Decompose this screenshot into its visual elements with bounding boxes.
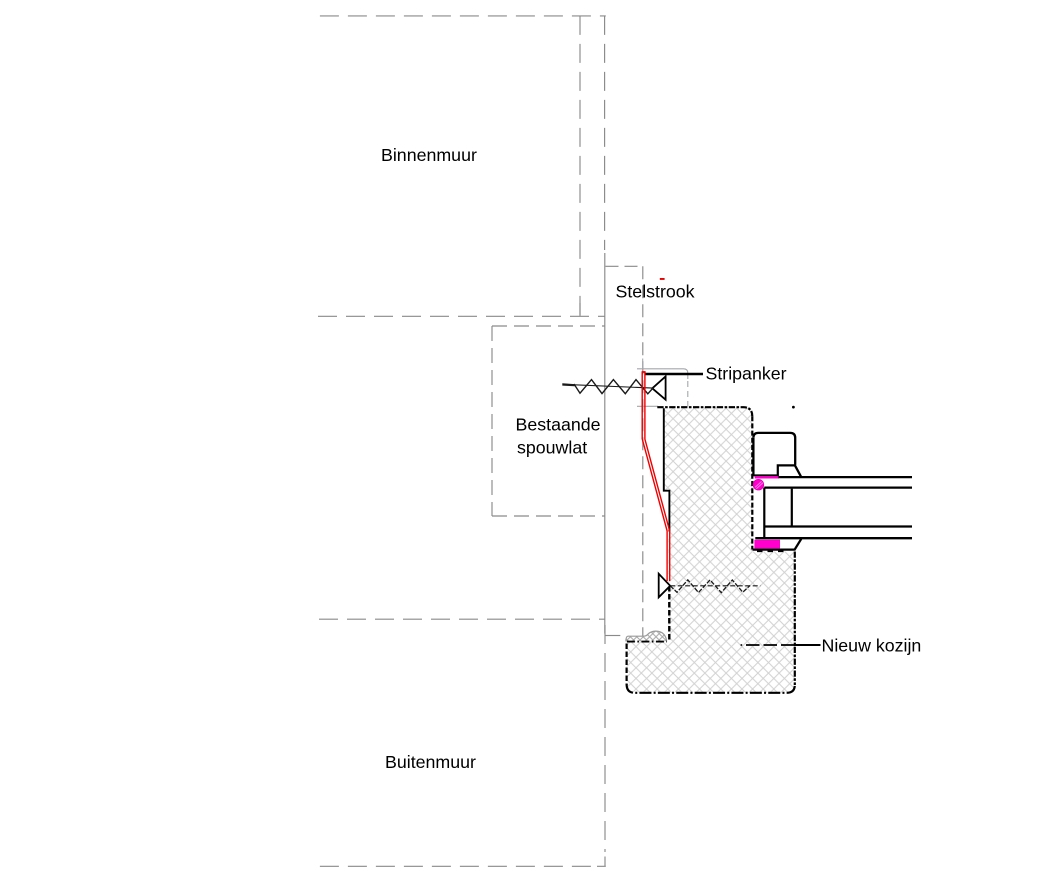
svg-text:Stelstrook: Stelstrook: [616, 282, 695, 302]
svg-text:Bestaande: Bestaande: [516, 415, 601, 435]
svg-text:Buitenmuur: Buitenmuur: [385, 752, 476, 772]
svg-text:Binnenmuur: Binnenmuur: [381, 145, 477, 165]
svg-text:spouwlat: spouwlat: [517, 438, 587, 458]
svg-text:Nieuw kozijn: Nieuw kozijn: [822, 636, 922, 656]
svg-text:Stripanker: Stripanker: [706, 364, 787, 384]
